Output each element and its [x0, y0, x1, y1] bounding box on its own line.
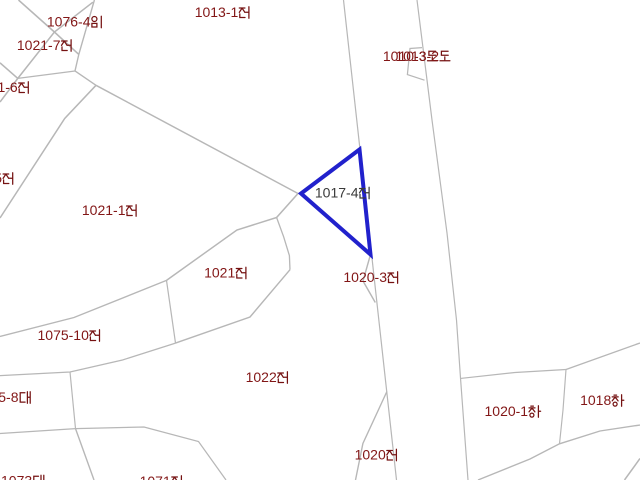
svg-text:1071: 1071 [140, 473, 171, 480]
svg-text:1075-8: 1075-8 [0, 389, 19, 405]
svg-text:1021-5: 1021-5 [0, 170, 2, 186]
svg-text:1020-1: 1020-1 [485, 403, 529, 419]
svg-text:1013-1: 1013-1 [195, 4, 239, 20]
svg-text:1073: 1073 [1, 473, 32, 480]
svg-text:1021-1: 1021-1 [82, 202, 126, 218]
svg-text:1020: 1020 [355, 447, 386, 463]
svg-text:1018: 1018 [580, 392, 611, 408]
svg-text:1020-3: 1020-3 [343, 269, 387, 285]
svg-text:1022: 1022 [246, 369, 277, 385]
svg-text:1076-4: 1076-4 [47, 14, 91, 30]
svg-text:1021-6: 1021-6 [0, 79, 18, 95]
svg-text:1017-4: 1017-4 [315, 185, 359, 201]
svg-text:1075-10: 1075-10 [38, 327, 90, 343]
svg-text:1021: 1021 [204, 265, 235, 281]
svg-text:1021-7: 1021-7 [17, 37, 61, 53]
svg-text:1013-2: 1013-2 [395, 48, 439, 64]
